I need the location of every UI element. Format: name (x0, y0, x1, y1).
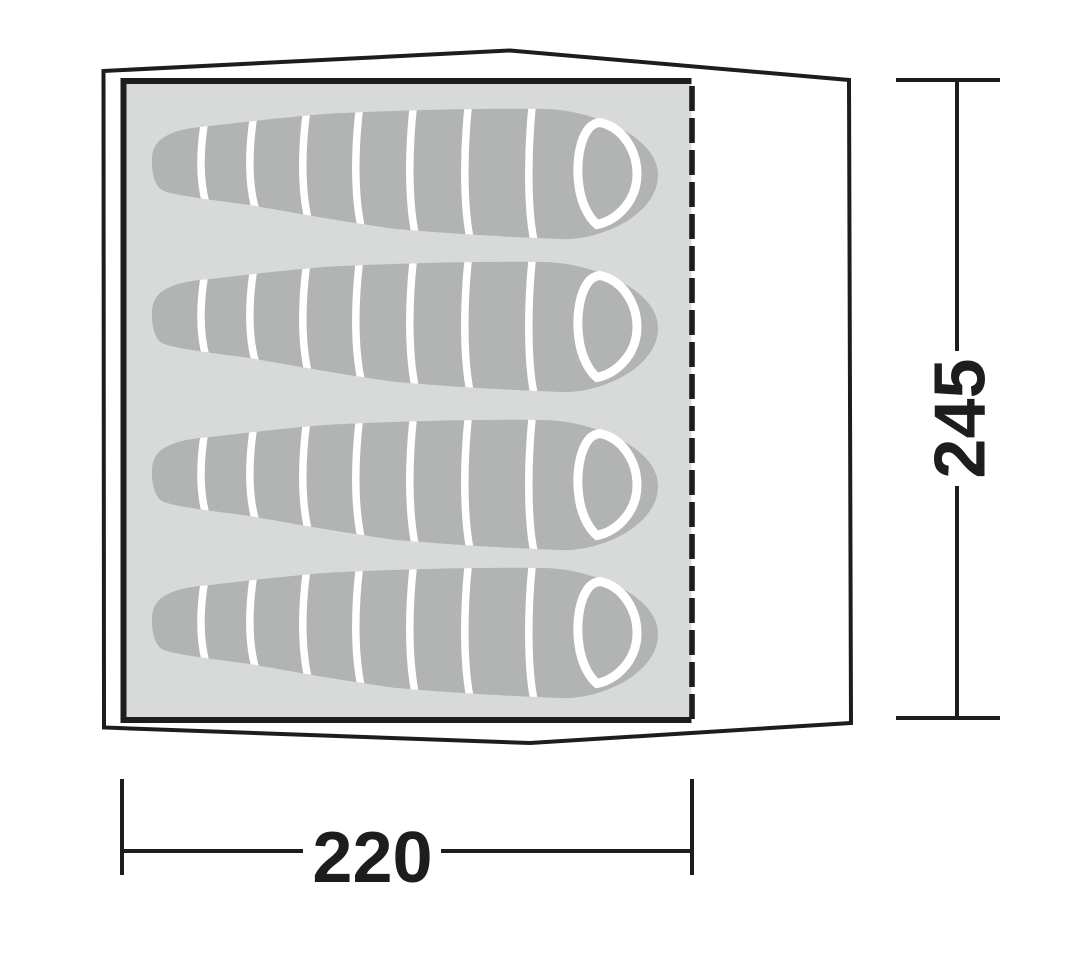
svg-text:220: 220 (312, 818, 432, 898)
svg-text:245: 245 (921, 358, 1001, 478)
